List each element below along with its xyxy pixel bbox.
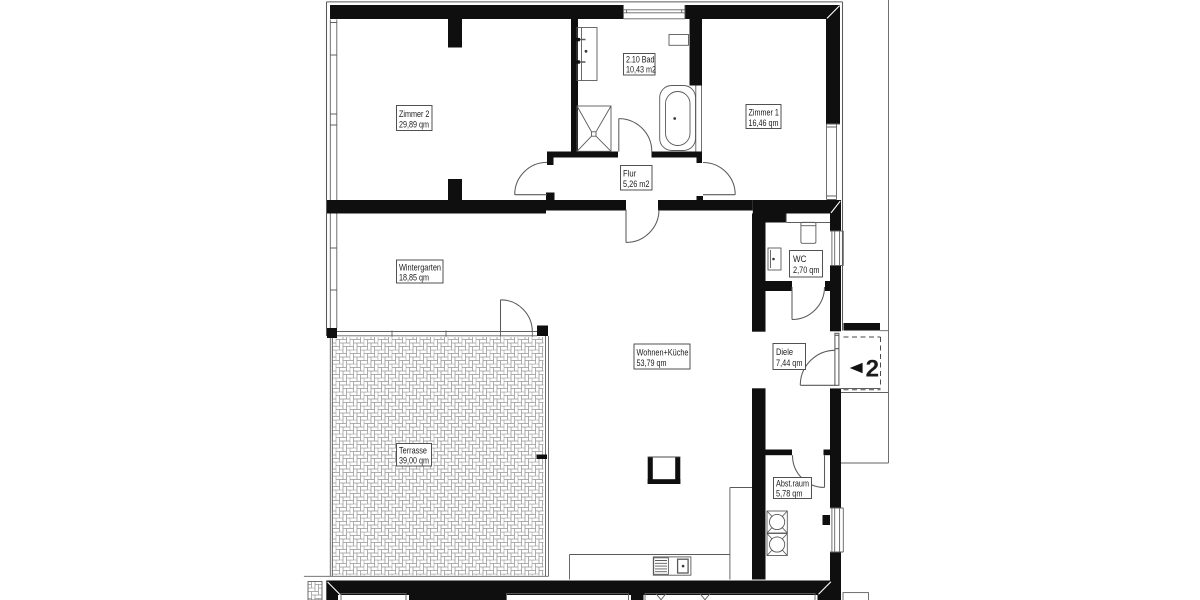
svg-text:Flur: Flur <box>623 168 636 179</box>
svg-text:2: 2 <box>866 356 879 383</box>
svg-text:5,78 qm: 5,78 qm <box>776 488 803 499</box>
svg-text:WC: WC <box>793 253 807 264</box>
svg-text:Zimmer 1: Zimmer 1 <box>749 107 779 118</box>
svg-text:18,85 qm: 18,85 qm <box>399 272 429 283</box>
svg-text:16,46 qm: 16,46 qm <box>749 117 779 128</box>
svg-text:Zimmer 2: Zimmer 2 <box>399 108 429 119</box>
svg-text:29,89 qm: 29,89 qm <box>399 119 429 130</box>
svg-text:10,43 m2: 10,43 m2 <box>626 64 656 75</box>
svg-text:2,70 qm: 2,70 qm <box>793 264 820 275</box>
svg-text:Diele: Diele <box>776 346 793 357</box>
svg-text:5,26 m2: 5,26 m2 <box>623 178 650 189</box>
svg-text:7,44 qm: 7,44 qm <box>776 357 803 368</box>
svg-text:39,00 qm: 39,00 qm <box>399 455 429 466</box>
svg-text:Wohnen+Küche: Wohnen+Küche <box>637 347 689 358</box>
svg-text:53,79 qm: 53,79 qm <box>637 357 667 368</box>
